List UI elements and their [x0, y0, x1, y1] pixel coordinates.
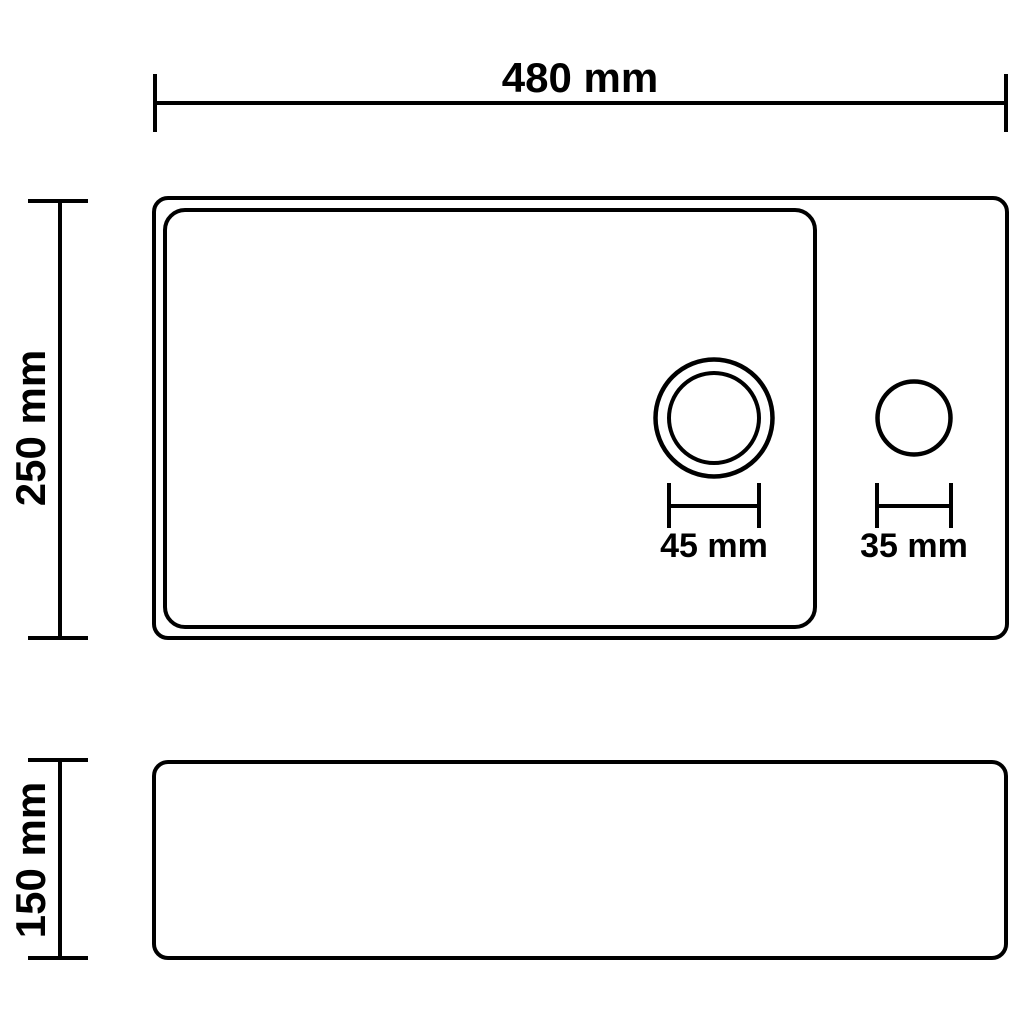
dim-drain-label: 45 mm [660, 527, 768, 565]
sink-dimension-drawing: 480 mm 45 mm 35 mm [0, 0, 1024, 1024]
dim-overall-width: 480 mm [155, 54, 1006, 132]
dim-height-label: 150 mm [7, 782, 54, 938]
side-view [154, 762, 1006, 958]
dim-overall-width-label: 480 mm [502, 54, 658, 101]
technical-drawing-page: 480 mm 45 mm 35 mm [0, 0, 1024, 1024]
dim-faucet-hole: 35 mm [860, 483, 968, 565]
dim-top-view-depth: 250 mm [7, 201, 88, 638]
drain-hole-outer-circle [656, 360, 773, 477]
dim-faucet-label: 35 mm [860, 527, 968, 565]
dim-side-view-height: 150 mm [7, 760, 88, 958]
drain-hole-inner-circle [669, 373, 759, 463]
dim-drain-hole: 45 mm [660, 483, 768, 565]
faucet-hole-circle [878, 382, 951, 455]
side-view-outline [154, 762, 1006, 958]
dim-depth-label: 250 mm [7, 350, 54, 506]
top-view [154, 198, 1007, 638]
